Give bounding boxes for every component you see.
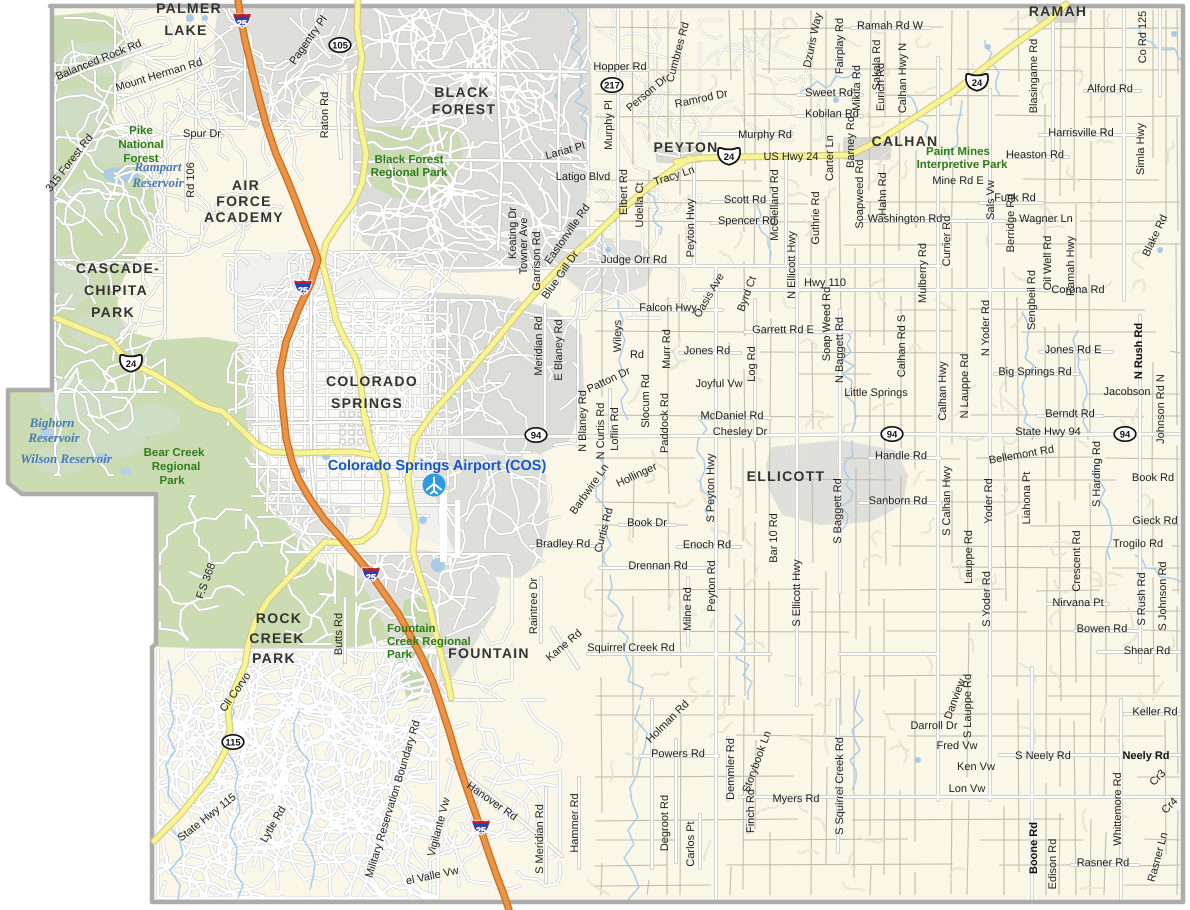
svg-text:Rd: Rd: [630, 349, 644, 361]
svg-text:24: 24: [126, 359, 137, 370]
svg-text:Raton Rd: Raton Rd: [319, 92, 331, 138]
svg-text:Berndt Rd: Berndt Rd: [1045, 408, 1095, 420]
svg-text:Nirvana Pt: Nirvana Pt: [1052, 597, 1103, 609]
svg-text:94: 94: [531, 431, 542, 442]
svg-text:CASCADE-: CASCADE-: [76, 260, 160, 276]
svg-text:Darroll Dr: Darroll Dr: [910, 720, 957, 732]
svg-text:Peyton Hwy: Peyton Hwy: [685, 198, 697, 257]
svg-text:N Blaney Rd: N Blaney Rd: [577, 390, 589, 452]
svg-text:Squirrel Creek Rd: Squirrel Creek Rd: [587, 642, 674, 654]
svg-text:RAMAH: RAMAH: [1029, 3, 1088, 19]
svg-text:Hammer Rd: Hammer Rd: [569, 793, 581, 852]
svg-text:S Yoder Rd: S Yoder Rd: [981, 571, 993, 627]
svg-text:PEYTON: PEYTON: [653, 139, 718, 155]
svg-text:Sanborn Rd: Sanborn Rd: [869, 495, 928, 507]
svg-text:S Harding Rd: S Harding Rd: [1091, 441, 1103, 507]
svg-text:Carlos Pt: Carlos Pt: [685, 821, 697, 866]
svg-text:PARK: PARK: [91, 304, 135, 320]
svg-text:Loflin Rd: Loflin Rd: [609, 407, 621, 450]
svg-text:Keller Rd: Keller Rd: [1132, 706, 1177, 718]
svg-text:Black Forest: Black Forest: [374, 154, 443, 166]
svg-text:Spur Dr: Spur Dr: [183, 128, 221, 140]
svg-text:Shear Rd: Shear Rd: [1124, 645, 1170, 657]
svg-text:105: 105: [332, 41, 349, 52]
svg-text:National: National: [118, 139, 163, 151]
svg-text:Bowen Rd: Bowen Rd: [1077, 623, 1128, 635]
svg-text:Fountain: Fountain: [387, 623, 436, 635]
svg-text:CREEK: CREEK: [249, 630, 305, 646]
svg-text:Mikita Rd: Mikita Rd: [851, 65, 863, 111]
svg-text:Paddock Rd: Paddock Rd: [659, 393, 671, 453]
svg-text:PALMER: PALMER: [156, 0, 222, 16]
svg-text:Little Springs: Little Springs: [844, 387, 908, 399]
svg-text:Oil Well Rd: Oil Well Rd: [1042, 236, 1054, 291]
svg-text:Finch Rd: Finch Rd: [745, 789, 757, 833]
svg-text:Reservoir: Reservoir: [131, 175, 184, 190]
svg-text:Jones Rd: Jones Rd: [684, 345, 730, 357]
svg-text:Sals Vw: Sals Vw: [985, 180, 997, 220]
svg-text:ACADEMY: ACADEMY: [204, 209, 284, 225]
svg-text:Jacobson: Jacobson: [1103, 386, 1150, 398]
svg-text:N Yoder Rd: N Yoder Rd: [980, 300, 992, 356]
svg-text:Sweet Rd: Sweet Rd: [805, 87, 853, 99]
svg-text:Mulberry Rd: Mulberry Rd: [917, 243, 929, 303]
svg-text:Drennan Rd: Drennan Rd: [628, 560, 687, 572]
svg-text:Book Rd: Book Rd: [1132, 472, 1174, 484]
svg-text:COLORADO: COLORADO: [326, 373, 418, 389]
svg-text:Boone Rd: Boone Rd: [1028, 822, 1040, 874]
svg-text:Rampart: Rampart: [134, 159, 182, 174]
svg-text:Murphy Rd: Murphy Rd: [738, 129, 792, 141]
svg-text:Falcon Hwy: Falcon Hwy: [639, 302, 697, 314]
svg-text:S Rush Rd: S Rush Rd: [1136, 572, 1148, 625]
svg-text:Interpretive Park: Interpretive Park: [917, 159, 1008, 171]
svg-text:N Lauppe Rd: N Lauppe Rd: [959, 354, 971, 419]
svg-text:Corona Rd: Corona Rd: [1051, 284, 1104, 296]
svg-text:Milne Rd: Milne Rd: [682, 587, 694, 630]
svg-text:Garrison Rd: Garrison Rd: [531, 231, 543, 290]
svg-text:Co Rd 125: Co Rd 125: [1137, 11, 1149, 64]
svg-text:Yoder Rd: Yoder Rd: [983, 478, 995, 523]
svg-text:Pike: Pike: [129, 125, 153, 137]
svg-text:ELLICOTT: ELLICOTT: [747, 468, 826, 484]
svg-text:Currier Rd: Currier Rd: [941, 216, 953, 267]
svg-text:S Baggett Rd: S Baggett Rd: [832, 478, 844, 543]
svg-text:Big Springs Rd: Big Springs Rd: [998, 366, 1071, 378]
svg-text:Raintree Dr: Raintree Dr: [528, 578, 540, 635]
svg-text:Sakala Rd: Sakala Rd: [871, 40, 883, 91]
svg-text:Calhan Rd S: Calhan Rd S: [896, 315, 908, 377]
svg-text:Bar 10 Rd: Bar 10 Rd: [768, 513, 780, 563]
svg-text:Fred Vw: Fred Vw: [937, 740, 978, 752]
svg-text:Rasner Rd: Rasner Rd: [1077, 857, 1130, 869]
svg-text:94: 94: [887, 430, 898, 441]
svg-text:Regional: Regional: [152, 461, 201, 473]
svg-text:25: 25: [476, 825, 486, 835]
svg-text:Wileys: Wileys: [612, 319, 624, 352]
svg-text:Reservoir: Reservoir: [27, 430, 80, 445]
svg-text:N Curtis Rd: N Curtis Rd: [595, 403, 607, 460]
svg-text:Murr Rd: Murr Rd: [661, 329, 673, 369]
svg-text:Chesley Dr: Chesley Dr: [713, 426, 768, 438]
svg-text:Whittemore Rd: Whittemore Rd: [1112, 772, 1124, 845]
svg-text:Slocum Rd: Slocum Rd: [640, 374, 652, 428]
svg-text:S Calhan Hwy: S Calhan Hwy: [941, 466, 953, 536]
svg-text:Regional Park: Regional Park: [371, 167, 448, 179]
svg-text:Enoch Rd: Enoch Rd: [683, 539, 731, 551]
svg-text:N Baggett Rd: N Baggett Rd: [834, 317, 846, 383]
svg-text:CHIPITA: CHIPITA: [84, 282, 148, 298]
svg-text:Bradley Rd: Bradley Rd: [536, 538, 590, 550]
svg-text:Log Rd: Log Rd: [746, 346, 758, 381]
svg-text:Gieck Rd: Gieck Rd: [1132, 515, 1177, 527]
svg-text:Jones Rd E: Jones Rd E: [1045, 344, 1102, 356]
svg-text:Mine Rd E: Mine Rd E: [932, 175, 983, 187]
svg-text:SPRINGS: SPRINGS: [331, 395, 403, 411]
svg-text:Paint Mines: Paint Mines: [926, 146, 990, 158]
svg-text:Elbert Rd: Elbert Rd: [618, 169, 630, 215]
svg-text:Degroot Rd: Degroot Rd: [659, 795, 671, 851]
svg-text:Demmler Rd: Demmler Rd: [725, 738, 737, 800]
svg-text:Lon Vw: Lon Vw: [949, 783, 986, 795]
svg-text:FOREST: FOREST: [432, 101, 497, 117]
svg-text:Heaston Rd: Heaston Rd: [1006, 149, 1064, 161]
svg-text:Alford Rd: Alford Rd: [1087, 83, 1133, 95]
svg-text:AIR: AIR: [232, 177, 260, 193]
svg-text:Peyton Rd: Peyton Rd: [706, 560, 718, 611]
svg-text:Butts Rd: Butts Rd: [333, 613, 345, 655]
svg-text:Murphy Pl: Murphy Pl: [603, 100, 615, 150]
svg-text:25: 25: [298, 285, 308, 295]
svg-text:Liahona Pt: Liahona Pt: [1021, 472, 1033, 525]
svg-text:State Hwy 94: State Hwy 94: [1015, 426, 1080, 438]
svg-text:Lauppe Rd: Lauppe Rd: [963, 530, 975, 584]
svg-text:Udella Ct: Udella Ct: [634, 182, 646, 227]
svg-text:Colorado Springs Airport (COS): Colorado Springs Airport (COS): [328, 458, 547, 474]
svg-text:Calhan Hwy: Calhan Hwy: [937, 361, 949, 421]
svg-text:217: 217: [604, 81, 620, 92]
svg-text:24: 24: [724, 152, 735, 163]
svg-text:FORCE: FORCE: [216, 193, 272, 209]
svg-text:S Meridian Rd: S Meridian Rd: [534, 804, 546, 874]
svg-text:Hahn Rd: Hahn Rd: [877, 172, 889, 215]
svg-text:Calhan Hwy N: Calhan Hwy N: [897, 43, 909, 113]
svg-text:N Ellicott Hwy: N Ellicott Hwy: [786, 231, 798, 299]
svg-text:McClelland Rd: McClelland Rd: [769, 169, 781, 241]
svg-text:S Johnson Rd: S Johnson Rd: [1157, 561, 1169, 630]
svg-text:Simla Hwy: Simla Hwy: [1135, 123, 1147, 175]
svg-text:Trogilo Rd: Trogilo Rd: [1113, 538, 1163, 550]
svg-text:Park: Park: [387, 649, 413, 661]
svg-text:US Hwy 24: US Hwy 24: [763, 151, 818, 163]
svg-text:S Peyton Hwy: S Peyton Hwy: [705, 453, 717, 523]
svg-text:94: 94: [1120, 430, 1131, 441]
svg-text:Fairplay Rd: Fairplay Rd: [834, 18, 846, 74]
svg-text:PARK: PARK: [252, 650, 296, 666]
svg-text:N Rush Rd: N Rush Rd: [1133, 323, 1145, 379]
svg-text:Towner Ave: Towner Ave: [518, 218, 530, 275]
svg-text:Neely Rd: Neely Rd: [1122, 750, 1169, 762]
svg-text:Johnson Rd N: Johnson Rd N: [1155, 374, 1167, 444]
svg-text:Soapweed Rd: Soapweed Rd: [854, 159, 866, 228]
svg-text:E Blaney Rd: E Blaney Rd: [553, 319, 565, 380]
svg-text:Latigo Blvd: Latigo Blvd: [556, 171, 610, 183]
svg-text:Book Dr: Book Dr: [627, 517, 667, 529]
svg-text:25: 25: [237, 18, 247, 28]
svg-text:Sengbeil Rd: Sengbeil Rd: [1026, 270, 1038, 330]
svg-text:Bear Creek: Bear Creek: [144, 447, 205, 459]
svg-text:Edison Rd: Edison Rd: [1047, 839, 1059, 890]
svg-text:Scott Rd: Scott Rd: [724, 194, 766, 206]
svg-text:Ken Vw: Ken Vw: [957, 761, 995, 773]
svg-text:Powers Rd: Powers Rd: [651, 748, 705, 760]
svg-text:ROCK: ROCK: [256, 610, 302, 626]
svg-text:25: 25: [366, 572, 376, 582]
svg-text:Berridge Rd: Berridge Rd: [1005, 194, 1017, 253]
svg-text:Ramah Hwy: Ramah Hwy: [1065, 236, 1077, 296]
svg-text:Garrett Rd E: Garrett Rd E: [752, 324, 814, 336]
svg-text:Crescent Rd: Crescent Rd: [1071, 530, 1083, 591]
svg-text:Joyful Vw: Joyful Vw: [695, 378, 742, 390]
svg-text:Handle Rd: Handle Rd: [875, 450, 927, 462]
svg-text:Bighorn: Bighorn: [29, 415, 75, 430]
svg-text:S Neely Rd: S Neely Rd: [1015, 750, 1071, 762]
svg-text:115: 115: [225, 738, 241, 749]
svg-text:Barney Rd: Barney Rd: [845, 116, 857, 168]
svg-text:24: 24: [972, 78, 983, 89]
svg-text:Judge Orr Rd: Judge Orr Rd: [601, 254, 667, 266]
svg-text:Park: Park: [160, 475, 186, 487]
svg-text:Creek Regional: Creek Regional: [387, 636, 471, 648]
svg-text:BLACK: BLACK: [434, 84, 490, 100]
svg-text:Harrisville Rd: Harrisville Rd: [1048, 127, 1113, 139]
svg-text:Guthrie Rd: Guthrie Rd: [810, 191, 822, 244]
svg-text:Blasingame Rd: Blasingame Rd: [1028, 39, 1040, 114]
svg-text:Wilson Reservoir: Wilson Reservoir: [20, 451, 113, 466]
svg-text:LAKE: LAKE: [164, 22, 207, 38]
svg-text:Hopper Rd: Hopper Rd: [593, 61, 646, 73]
svg-text:Wagner Ln: Wagner Ln: [1019, 213, 1072, 225]
svg-text:Carter Ln: Carter Ln: [824, 135, 836, 181]
svg-text:Soap Weed Rd: Soap Weed Rd: [821, 287, 833, 361]
svg-text:Rd 106: Rd 106: [185, 162, 197, 197]
svg-text:Ramah Rd W: Ramah Rd W: [857, 20, 924, 32]
svg-text:S Ellicott Hwy: S Ellicott Hwy: [791, 559, 803, 627]
svg-text:Myers Rd: Myers Rd: [772, 793, 819, 805]
svg-text:Meridian Rd: Meridian Rd: [533, 316, 545, 375]
svg-text:McDaniel Rd: McDaniel Rd: [701, 410, 764, 422]
svg-text:Spencer Rd: Spencer Rd: [718, 215, 776, 227]
svg-text:S Squirrel Creek Rd: S Squirrel Creek Rd: [834, 737, 846, 835]
